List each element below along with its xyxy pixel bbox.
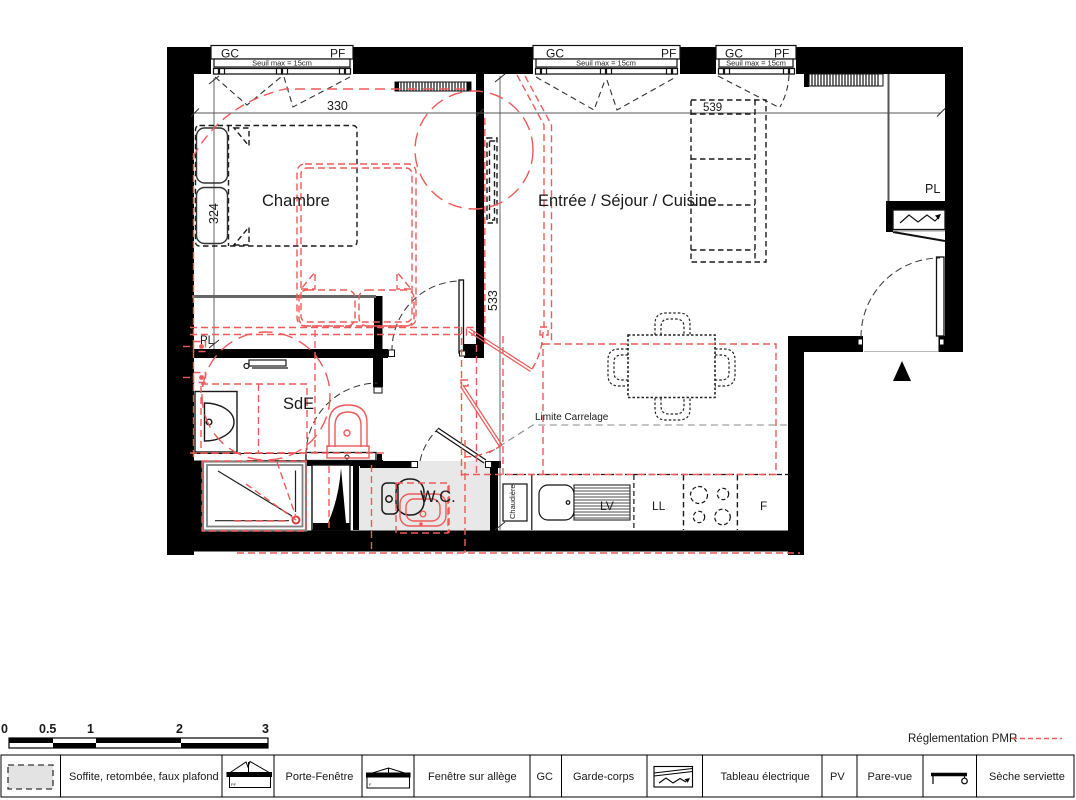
svg-text:0: 0 bbox=[1, 722, 8, 736]
svg-text:GC: GC bbox=[537, 771, 554, 783]
svg-text:Sèche serviette: Sèche serviette bbox=[989, 771, 1065, 783]
svg-text:Soffite, retombée, faux plafon: Soffite, retombée, faux plafond bbox=[69, 771, 219, 783]
svg-text:330: 330 bbox=[327, 99, 348, 113]
svg-text:Seuil max = 15cm: Seuil max = 15cm bbox=[726, 59, 786, 68]
svg-text:LL: LL bbox=[652, 499, 666, 513]
svg-text:Réglementation PMR: Réglementation PMR bbox=[908, 733, 1017, 745]
svg-text:SdE: SdE bbox=[283, 395, 314, 413]
svg-text:Fenêtre sur allège: Fenêtre sur allège bbox=[428, 771, 517, 783]
svg-text:Tableau électrique: Tableau électrique bbox=[721, 771, 810, 783]
svg-text:Garde-corps: Garde-corps bbox=[573, 771, 635, 783]
svg-text:PF: PF bbox=[231, 782, 237, 787]
svg-text:PL: PL bbox=[925, 182, 940, 196]
svg-text:Limite Carrelage: Limite Carrelage bbox=[535, 412, 609, 423]
svg-text:1: 1 bbox=[87, 722, 94, 736]
svg-text:PV: PV bbox=[830, 771, 845, 783]
svg-text:LV: LV bbox=[600, 499, 614, 513]
svg-text:W.C.: W.C. bbox=[420, 488, 456, 506]
svg-text:Porte-Fenêtre: Porte-Fenêtre bbox=[286, 771, 354, 783]
svg-text:Chaudière: Chaudière bbox=[508, 484, 517, 519]
svg-text:PL: PL bbox=[200, 335, 215, 347]
svg-text:GC: GC bbox=[221, 47, 239, 61]
svg-text:PF: PF bbox=[661, 47, 676, 61]
svg-text:Seuil max = 15cm: Seuil max = 15cm bbox=[252, 59, 312, 68]
svg-text:2: 2 bbox=[176, 722, 183, 736]
svg-text:3: 3 bbox=[262, 722, 269, 736]
svg-text:Seuil max = 15cm: Seuil max = 15cm bbox=[576, 59, 636, 68]
svg-text:F: F bbox=[760, 499, 767, 513]
svg-text:GC: GC bbox=[546, 47, 564, 61]
svg-text:Entrée / Séjour / Cuisine: Entrée / Séjour / Cuisine bbox=[538, 192, 717, 210]
svg-text:Chambre: Chambre bbox=[262, 192, 330, 210]
svg-text:PF: PF bbox=[330, 47, 345, 61]
svg-text:533: 533 bbox=[486, 290, 500, 311]
svg-text:539: 539 bbox=[703, 102, 722, 114]
svg-text:Pare-vue: Pare-vue bbox=[868, 771, 913, 783]
svg-text:324: 324 bbox=[207, 203, 221, 224]
svg-text:0.5: 0.5 bbox=[39, 722, 56, 736]
